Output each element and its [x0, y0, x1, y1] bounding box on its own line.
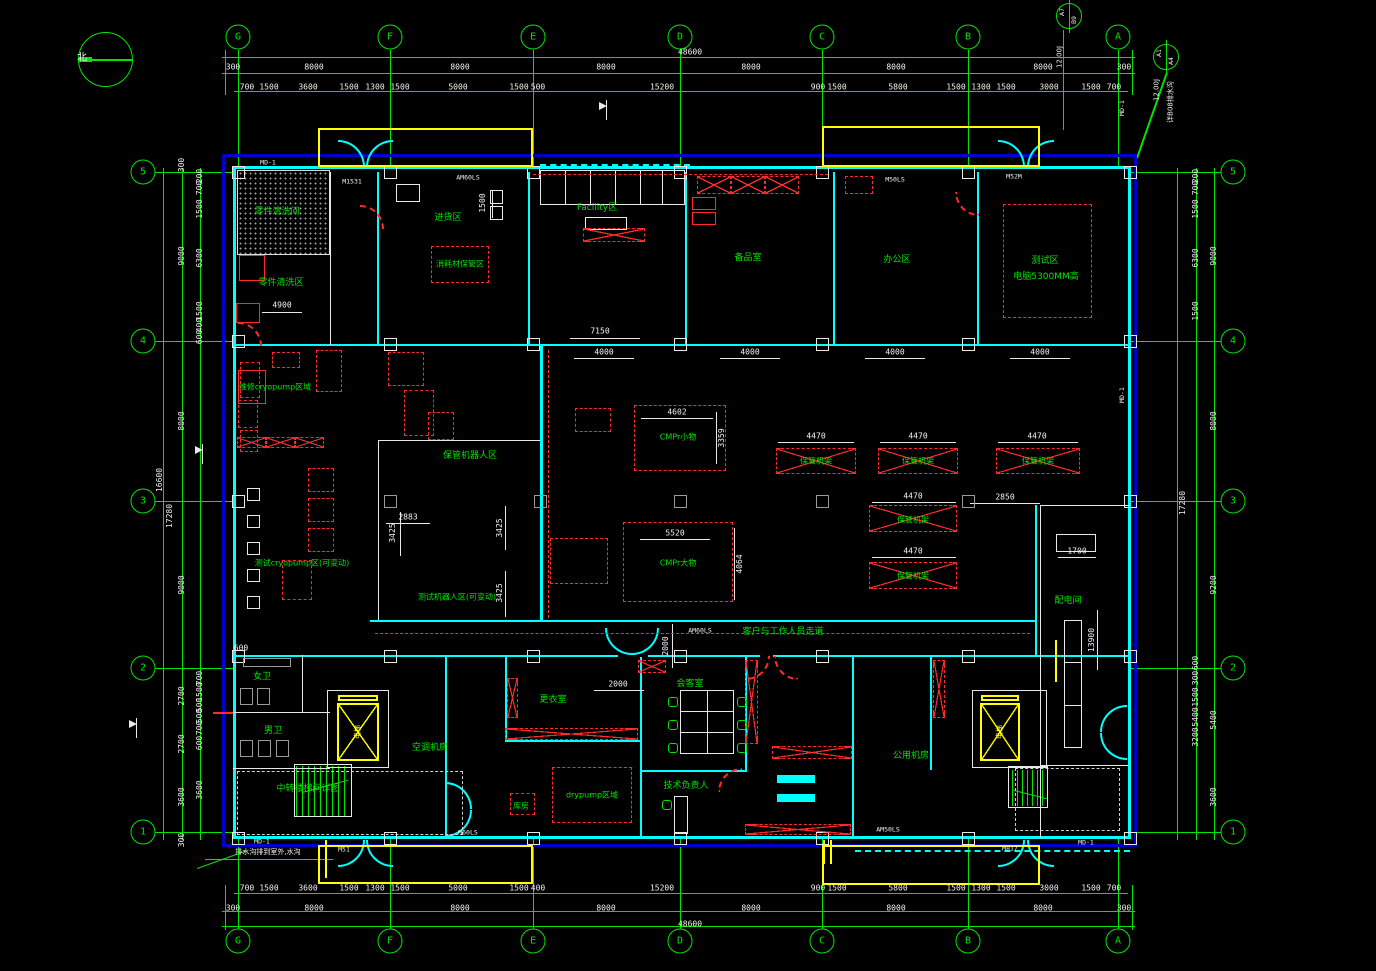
equipment-zone-box: [845, 176, 873, 194]
chair-icon: [737, 743, 747, 753]
column: [527, 650, 540, 663]
dimension-label: 9000: [178, 575, 186, 594]
room-label: 零件清洗间: [254, 207, 299, 217]
chair-icon: [662, 800, 672, 810]
wall-white: [574, 358, 634, 359]
stair-room-outline: [1015, 768, 1120, 831]
dimension-label: 1500: [479, 193, 487, 212]
dimension-label: 4470: [903, 491, 922, 500]
dimension-label: 1500: [827, 883, 846, 892]
column: [232, 166, 245, 179]
column: [232, 495, 245, 508]
grid-bubble: 4: [1221, 329, 1246, 354]
wall: [1035, 505, 1037, 657]
equipment-rack: [638, 660, 666, 673]
dimension-label: 1300: [365, 883, 384, 892]
dimension-label: 1500: [996, 82, 1015, 91]
wall: [377, 172, 379, 344]
equipment-zone-box: [308, 528, 334, 552]
dimension-label: 15200: [650, 82, 674, 91]
toilet-fixture: [243, 658, 291, 667]
wall: [233, 655, 618, 657]
column: [527, 166, 540, 179]
dimension-label: 4470: [908, 431, 927, 440]
dimension-label: 4000: [1030, 347, 1049, 356]
room-label: 备品室: [734, 253, 761, 263]
dimension-label: 300: [178, 833, 186, 847]
equipment-rack: [772, 746, 852, 759]
equipment-box: [692, 212, 716, 225]
fixture: [247, 596, 260, 609]
wall-dashed-red: [548, 350, 549, 618]
dimension-label: 1500: [390, 82, 409, 91]
equipment-zone-box: [238, 400, 258, 428]
wall: [685, 172, 687, 344]
dimension-label: 4470: [903, 546, 922, 555]
equipment-label: 保管机架: [897, 571, 929, 580]
dimension-label: 9000: [1210, 246, 1218, 265]
fixture: [247, 515, 260, 528]
canopy-outline: [318, 128, 533, 167]
dimension-label: 700: [196, 721, 204, 735]
room-label: 测试cryopump区(可变动): [255, 558, 350, 567]
column: [384, 650, 397, 663]
dimension-label: 1500: [339, 82, 358, 91]
dimension-label: 500: [531, 82, 545, 91]
dimension-label: 48600: [678, 47, 702, 56]
canopy-outline: [822, 126, 1040, 167]
wall-white: [872, 557, 956, 558]
wall-tag: MD-1: [260, 159, 276, 166]
drawing-line: [533, 50, 534, 167]
equipment-rack: [933, 660, 945, 718]
fixture: [1064, 620, 1082, 748]
equipment-rack: [731, 176, 765, 194]
equipment-zone-box: [308, 468, 334, 492]
column: [962, 832, 975, 845]
wall-white: [998, 442, 1078, 443]
toilet-fixture: [240, 740, 253, 757]
toilet-fixture: [258, 740, 271, 757]
dimension-label: 8000: [450, 903, 469, 912]
column: [816, 166, 829, 179]
grid-bubble: F: [378, 929, 403, 954]
dimension-label: 9000: [178, 246, 186, 265]
section-marker-text: B9: [1072, 16, 1078, 24]
equipment-zone-box: [388, 352, 424, 386]
wall-white: [505, 571, 506, 617]
fixture: [396, 184, 420, 202]
equipment-label: CMPr小物: [660, 432, 696, 441]
section-marker-text: A7: [1060, 8, 1066, 16]
dimension-label: 2700: [178, 686, 186, 705]
equipment-rack: [745, 824, 851, 835]
wall-tag: MD-1: [1078, 839, 1094, 846]
column: [1124, 495, 1137, 508]
equipment-label: CMPr大物: [660, 558, 696, 567]
toilet-fixture: [257, 688, 270, 705]
wall: [833, 172, 835, 344]
dimension-label: 3600: [178, 787, 186, 806]
room-label: 公用机房: [893, 751, 929, 761]
dimension-label: 300: [178, 158, 186, 172]
column: [816, 650, 829, 663]
column: [527, 338, 540, 351]
annotation-label: 详B08排水沟: [1168, 81, 1175, 123]
dimension-label: 1500: [509, 883, 528, 892]
dimension-label: 2700: [178, 734, 186, 753]
room-label: 测试区: [1031, 256, 1058, 266]
dimension-label: 5400: [1210, 710, 1218, 729]
wall-white: [302, 655, 303, 712]
wall-tag: MD-1: [1119, 100, 1126, 116]
drawing-line: [205, 859, 333, 860]
wall-tag: M51: [338, 846, 350, 853]
dimension-label: 3600: [298, 82, 317, 91]
dimension-label: 8000: [886, 903, 905, 912]
dimension-label: 3000: [1039, 883, 1058, 892]
wall: [777, 794, 815, 802]
grid-bubble: 2: [1221, 656, 1246, 681]
grid-bubble: C: [810, 25, 835, 50]
dimension-label: 3425: [496, 518, 504, 537]
room-label: 配电间: [1054, 596, 1081, 606]
drawing-line: [225, 50, 226, 95]
chair-icon: [668, 697, 678, 707]
room-label: 空调机房: [412, 743, 448, 753]
dimension-label: 1500: [196, 199, 204, 218]
column: [384, 338, 397, 351]
wall-white: [672, 624, 673, 668]
room-label: 进货区: [434, 213, 461, 223]
dimension-label: 1500: [1192, 199, 1200, 218]
room-label: 更衣室: [539, 695, 566, 705]
dimension-label: 1500: [259, 82, 278, 91]
yellow-line: [830, 840, 832, 864]
wall: [370, 620, 1036, 622]
toilet-fixture: [276, 740, 289, 757]
annotation-label: 12.00J: [1154, 79, 1161, 101]
drawing-line: [163, 168, 164, 840]
wall: [640, 657, 642, 838]
equipment-zone-box: [240, 430, 258, 452]
dimension-label: 8000: [1210, 411, 1218, 430]
dimension-label: 8000: [886, 62, 905, 71]
equipment-rack: [295, 437, 324, 448]
dimension-label: 1700: [1067, 546, 1086, 555]
dimension-label: 5400: [1192, 707, 1200, 726]
grid-bubble: G: [226, 929, 251, 954]
dimension-label: 1500: [509, 82, 528, 91]
grid-bubble: G: [226, 25, 251, 50]
wall-white: [330, 172, 331, 345]
column: [674, 650, 687, 663]
wall-white: [778, 442, 854, 443]
dimension-label: 15200: [650, 883, 674, 892]
dimension-label: 17280: [166, 504, 174, 528]
dimension-label: 7150: [590, 326, 609, 335]
equipment-label: 库房: [513, 801, 529, 810]
column: [232, 832, 245, 845]
grid-bubble: B: [956, 929, 981, 954]
fixture: [680, 690, 734, 754]
column: [1124, 650, 1137, 663]
dimension-label: 3000: [1039, 82, 1058, 91]
wall-tag: AM60LS: [456, 174, 479, 181]
dimension-label: 8000: [596, 903, 615, 912]
dimension-label: 8000: [741, 62, 760, 71]
wall-white: [1010, 358, 1070, 359]
grid-bubble: 3: [131, 489, 156, 514]
dimension-label: 1500: [1192, 687, 1200, 706]
section-marker-text: A4: [1169, 57, 1175, 65]
dimension-label: 3600: [196, 780, 204, 799]
drawing-line: [222, 57, 1135, 58]
dimension-label: 1300: [971, 82, 990, 91]
toilet-fixture: [240, 688, 253, 705]
yellow-line: [325, 840, 327, 878]
wall-tag: AM50LS: [876, 826, 899, 833]
fixture: [247, 569, 260, 582]
wall-tag: AM60LS: [688, 627, 711, 634]
dimension-label: 700: [240, 82, 254, 91]
dimension-label: 700: [240, 883, 254, 892]
chair-icon: [737, 697, 747, 707]
column: [674, 166, 687, 179]
annotation-label: 12.00J: [1057, 46, 1064, 68]
chair-icon: [668, 720, 678, 730]
wall-tag: M817: [1002, 845, 1018, 852]
wall-white: [378, 440, 540, 441]
dimension-label: 1500: [259, 883, 278, 892]
dimension-label: 300: [226, 903, 240, 912]
dimension-label: 600: [196, 736, 204, 750]
wall-white: [1040, 505, 1130, 506]
equipment-box: [692, 197, 716, 210]
dimension-label: 3359: [718, 428, 726, 447]
equipment-rack: [505, 728, 638, 740]
equipment-zone-box: [428, 412, 454, 440]
grid-bubble: 2: [131, 656, 156, 681]
dimension-label: 2850: [995, 492, 1014, 501]
fixture: [490, 190, 503, 204]
dimension-label: 900: [811, 82, 825, 91]
dimension-label: 48600: [678, 919, 702, 928]
wall: [505, 740, 641, 742]
dimension-label: 1500: [390, 883, 409, 892]
dimension-label: 3200: [1192, 727, 1200, 746]
dimension-label: 8000: [1033, 62, 1052, 71]
dimension-label: 4470: [1027, 431, 1046, 440]
column: [962, 338, 975, 351]
grid-bubble: D: [668, 25, 693, 50]
dimension-label: 1500: [1192, 301, 1200, 320]
dimension-label: 1500: [996, 883, 1015, 892]
dimension-label: 300: [226, 62, 240, 71]
equipment-rack: [507, 678, 518, 718]
dimension-label: 2000: [662, 636, 670, 655]
section-marker-icon: [1166, 41, 1167, 73]
dimension-label: 4000: [594, 347, 613, 356]
wall-tag: M60LS: [458, 829, 478, 836]
dimension-label: 8000: [1033, 903, 1052, 912]
drawing-line: [680, 50, 681, 167]
dimension-label: 1500: [827, 82, 846, 91]
north-label: 北: [77, 52, 87, 64]
wall-tag: MD-1: [254, 838, 270, 845]
room-label: 测试机器人区(可变动): [418, 592, 496, 601]
canopy-outline: [981, 695, 1019, 701]
wall-tag: M50LS: [885, 176, 905, 183]
dimension-label: 600: [1192, 656, 1200, 670]
dimension-label: 4064: [736, 554, 744, 573]
wall-white: [872, 502, 956, 503]
dimension-label: 300: [1117, 903, 1131, 912]
drawing-line: [1132, 885, 1133, 930]
dimension-label: 3600: [298, 883, 317, 892]
column: [384, 832, 397, 845]
dimension-label: 6300: [196, 248, 204, 267]
fixture: [247, 488, 260, 501]
dimension-label: 8000: [741, 903, 760, 912]
drawing-line: [234, 893, 1128, 894]
grid-bubble: A: [1106, 929, 1131, 954]
dimension-label: 1500: [946, 883, 965, 892]
dimension-label: 1500: [339, 883, 358, 892]
dimension-label: 17280: [1179, 491, 1187, 515]
dimension-label: 5000: [448, 82, 467, 91]
dimension-label: 4900: [272, 300, 291, 309]
fixture: [674, 796, 688, 834]
grid-bubble: D: [668, 929, 693, 954]
column: [674, 495, 687, 508]
equipment-rack: [765, 176, 799, 194]
wall-white: [378, 440, 379, 620]
grid-bubble: E: [521, 25, 546, 50]
wall-tag: M1531: [342, 178, 362, 185]
column: [816, 338, 829, 351]
section-marker-text: A1: [1157, 49, 1163, 57]
equipment-zone-box: [240, 362, 260, 398]
dimension-label: 5000: [448, 883, 467, 892]
annotation-label: 排水沟排到室外,水沟: [235, 848, 300, 856]
drawing-line: [222, 911, 1135, 912]
section-flag-icon: [196, 444, 210, 464]
dimension-label: 5800: [888, 883, 907, 892]
dimension-label: 3425: [389, 523, 397, 542]
dimension-label: 9200: [1210, 575, 1218, 594]
grid-bubble: 1: [131, 820, 156, 845]
dimension-label: 600: [196, 330, 204, 344]
dimension-label: 2883: [398, 512, 417, 521]
column: [1124, 832, 1137, 845]
dimension-label: 1500: [946, 82, 965, 91]
elevator-label: 电梯: [355, 725, 362, 739]
dimension-label: 1300: [971, 883, 990, 892]
equipment-label: 保管机架: [1022, 456, 1054, 465]
room-label: 会客室: [676, 679, 703, 689]
drawing-line: [1132, 50, 1133, 95]
grid-bubble: 5: [131, 160, 156, 185]
grid-bubble: 5: [1221, 160, 1246, 185]
dimension-label: 4602: [667, 407, 686, 416]
grid-bubble: 4: [131, 329, 156, 354]
dimension-label: 8000: [304, 62, 323, 71]
dimension-label: 5800: [888, 82, 907, 91]
column: [384, 495, 397, 508]
section-flag-icon: [130, 718, 144, 738]
grid-bubble: A: [1106, 25, 1131, 50]
equipment-rack: [266, 437, 295, 448]
equipment-box: [236, 303, 260, 323]
dimension-label: 700: [196, 181, 204, 195]
dimension-label: 4000: [885, 347, 904, 356]
dimension-label: 700: [1192, 181, 1200, 195]
column: [962, 166, 975, 179]
wall-tag: M52M: [1006, 173, 1022, 180]
room-label: 客户与工作人员走道: [742, 627, 823, 637]
dimension-label: 4470: [806, 431, 825, 440]
grid-bubble: 3: [1221, 489, 1246, 514]
dimension-label: 4000: [740, 347, 759, 356]
wall: [540, 346, 543, 622]
elevator-label: 电梯: [997, 725, 1004, 739]
yellow-line: [1055, 640, 1057, 682]
wall-red: [213, 712, 233, 714]
dimension-label: 8000: [178, 411, 186, 430]
fixture: [490, 206, 503, 220]
dimension-label: 6300: [1192, 248, 1200, 267]
canopy-outline: [318, 845, 533, 884]
dimension-label: 1500: [1081, 883, 1100, 892]
canopy-outline: [338, 695, 378, 701]
room-label: 办公区: [883, 255, 910, 265]
grid-bubble: F: [378, 25, 403, 50]
wall-white: [1097, 610, 1098, 670]
equipment-zone-box: [308, 498, 334, 522]
drawing-line: [680, 838, 681, 930]
column: [674, 832, 687, 845]
fixture: [540, 170, 685, 205]
dimension-label: 1300: [365, 82, 384, 91]
section-flag-icon: [600, 100, 614, 120]
wall-white: [505, 506, 506, 550]
equipment-label: drypump区域: [566, 790, 618, 799]
column: [527, 832, 540, 845]
chair-icon: [668, 743, 678, 753]
dimension-label: 300: [1117, 62, 1131, 71]
room-label: 男卫: [264, 726, 282, 736]
equipment-label: 保管机架: [897, 515, 929, 524]
wall: [777, 775, 815, 783]
column: [534, 495, 547, 508]
dimension-label: 700: [1107, 82, 1121, 91]
column: [674, 338, 687, 351]
column: [1124, 166, 1137, 179]
grid-bubble: B: [956, 25, 981, 50]
dimension-label: 8000: [596, 62, 615, 71]
stair-room-outline: [237, 771, 463, 835]
grid-bubble: E: [521, 929, 546, 954]
room-label: 保管机器人区: [443, 451, 497, 461]
equipment-zone-box: [316, 350, 342, 392]
wall-white: [720, 358, 780, 359]
room-label: 中转楼梯间详图: [276, 784, 339, 794]
dimension-label: 8000: [304, 903, 323, 912]
column: [816, 495, 829, 508]
column: [1124, 335, 1137, 348]
wall-white: [880, 442, 956, 443]
